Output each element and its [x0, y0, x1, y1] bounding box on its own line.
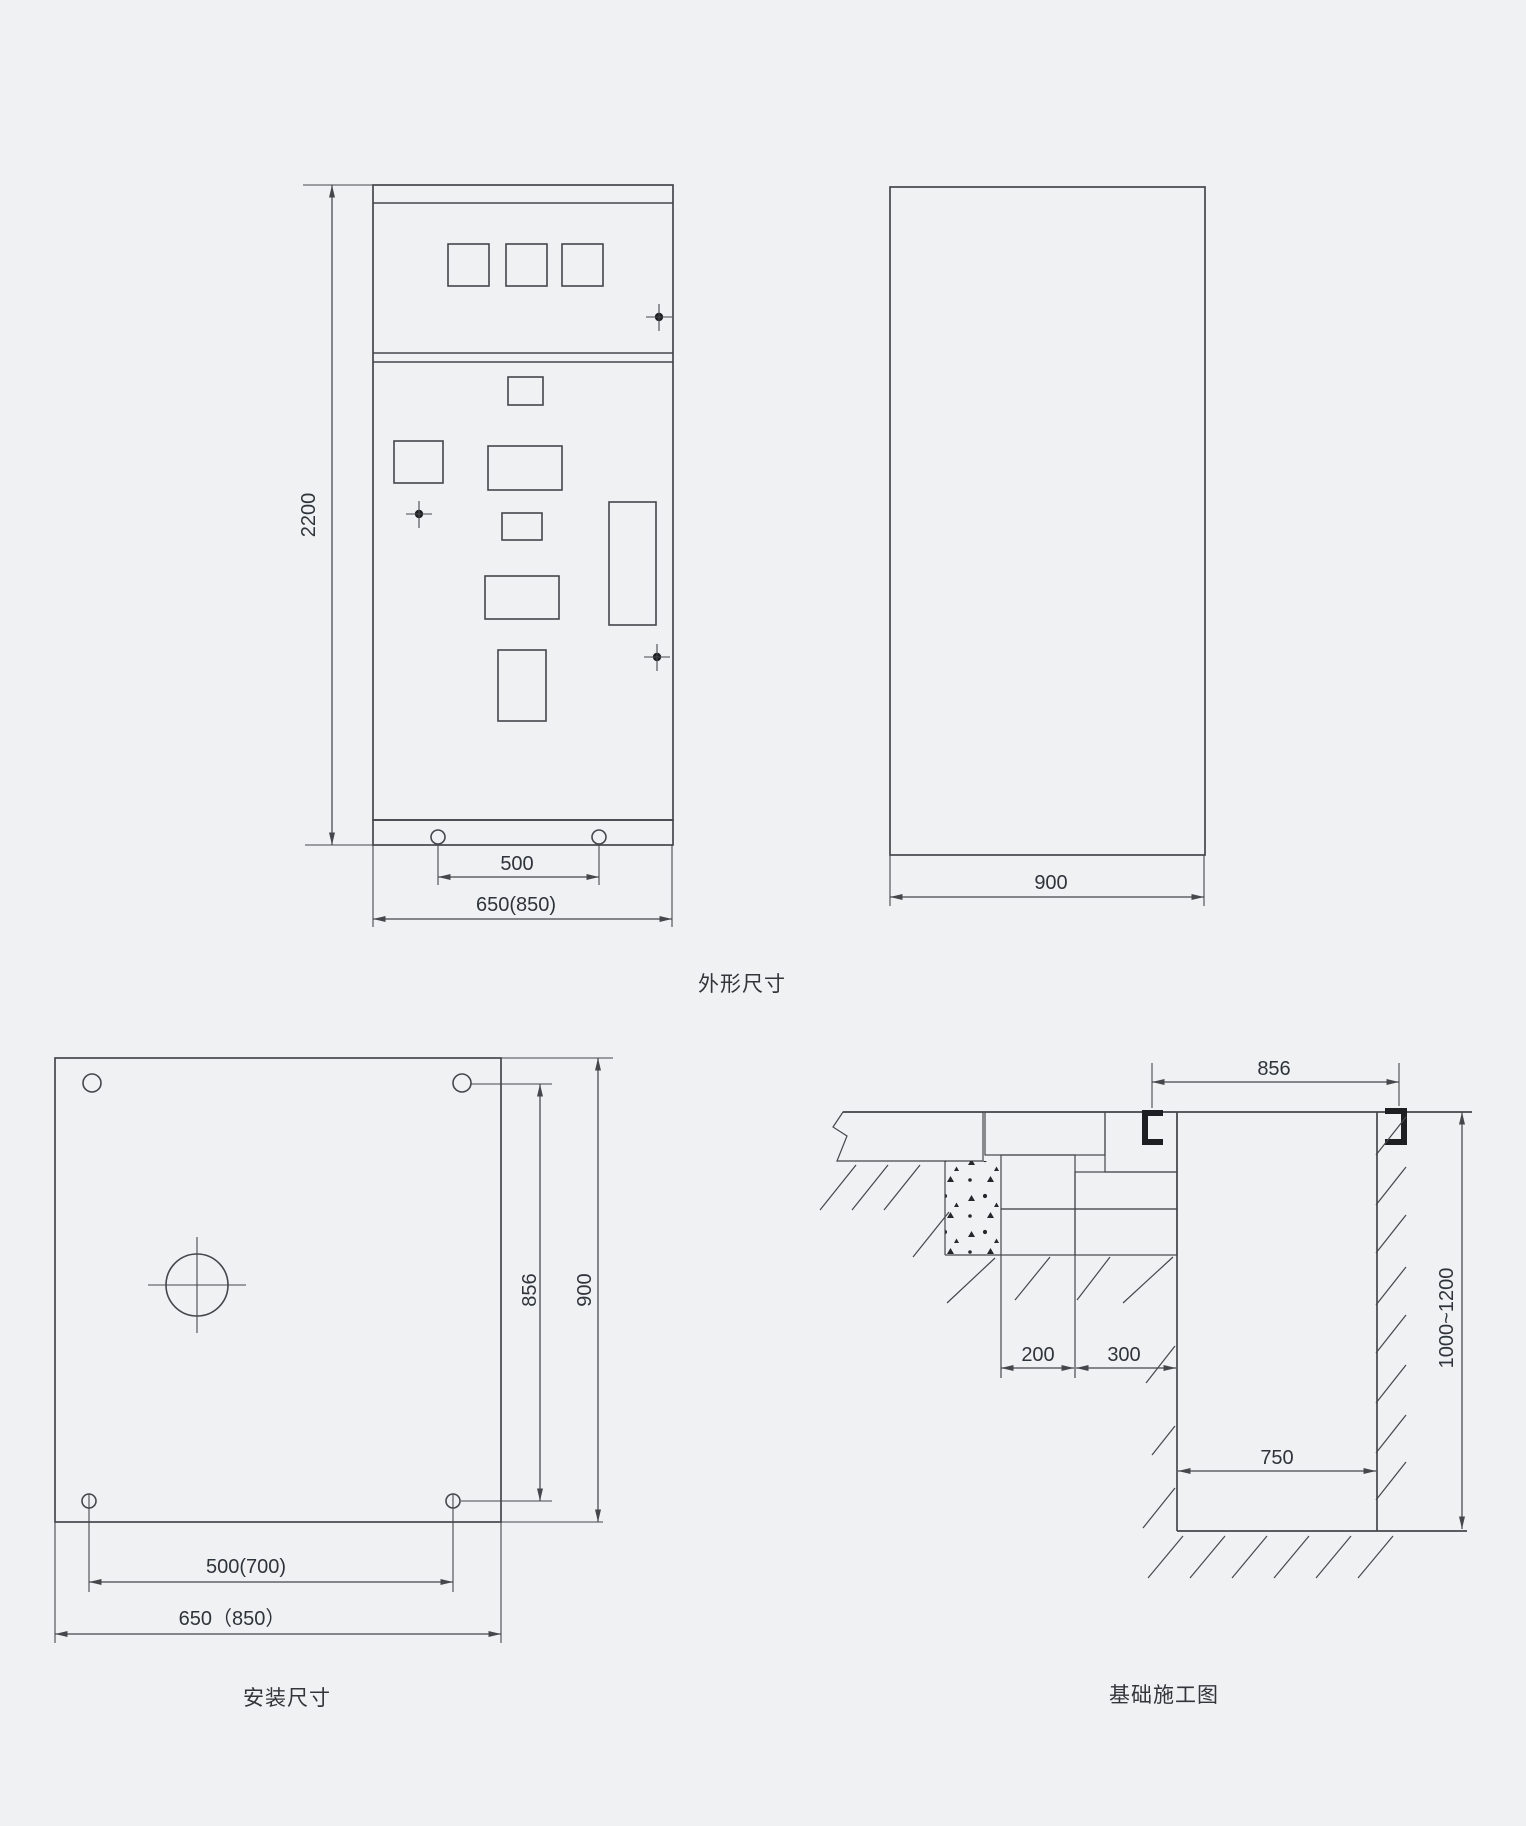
fixing-point-marker [406, 501, 432, 528]
dim-label-plan-hole-span: 856 [519, 1273, 541, 1306]
dimension-foundation-pit-depth: 1000~1200 [1436, 1112, 1462, 1529]
embedded-channel-left [1142, 1110, 1163, 1145]
footprint-outline [55, 1058, 501, 1522]
installation-plan-view: 856 900 500(700) 650（850） [55, 1058, 613, 1643]
caption-outline-view: 外形尺寸 [698, 973, 786, 996]
concrete-footing-right [1075, 1209, 1177, 1255]
side-view: 900 [890, 187, 1205, 906]
dim-label-ledge-width: 300 [1107, 1344, 1140, 1366]
indicator-window [508, 377, 543, 405]
dimension-front-height: 2200 [298, 185, 373, 845]
small-cutout [502, 513, 542, 540]
fixing-point-marker [644, 644, 670, 671]
panel-cutout-center [488, 446, 562, 490]
dimension-foundation-channel-spacing: 856 [1152, 1058, 1399, 1108]
drawing-sheet: 2200 500 650(850) 900 外形尺寸 [0, 0, 1526, 1826]
meter-window-2 [506, 244, 547, 286]
anchor-hole-top-left [83, 1074, 101, 1092]
caption-foundation-view: 基础施工图 [1109, 1684, 1219, 1707]
dimension-front-hole-spacing: 500 [438, 845, 599, 885]
dim-label-side-depth: 900 [1034, 872, 1067, 894]
dimension-plan-hole-span: 856 [461, 1084, 552, 1501]
front-view: 2200 500 650(850) [298, 185, 673, 927]
dimension-side-depth: 900 [890, 855, 1204, 906]
dim-label-front-hole-spacing: 500 [500, 853, 533, 875]
foot-hole-left [431, 830, 445, 844]
engineering-drawing: 2200 500 650(850) 900 外形尺寸 [0, 0, 1526, 1826]
meter-window-3 [562, 244, 603, 286]
dim-label-plan-depth: 900 [574, 1273, 596, 1306]
cabinet-base-plinth [373, 820, 673, 845]
dimension-foundation-strip: 200 [1001, 1344, 1074, 1368]
dim-label-plan-hole-spacing: 500(700) [206, 1556, 286, 1578]
panel-cutout-bottom [498, 650, 546, 721]
dimension-plan-hole-spacing: 500(700) [89, 1494, 453, 1592]
dim-label-front-height: 2200 [298, 493, 320, 538]
dimension-plan-depth: 900 [574, 1058, 598, 1522]
dim-label-channel-spacing: 856 [1257, 1058, 1290, 1080]
foot-hole-right [592, 830, 606, 844]
fixing-point-marker [646, 304, 672, 331]
bedding-layer-right [1075, 1172, 1177, 1209]
dimension-plan-width: 650（850） [55, 1607, 501, 1634]
panel-cutout-lower [485, 576, 559, 619]
dim-label-pit-depth: 1000~1200 [1436, 1268, 1458, 1369]
dim-label-pit-width: 750 [1260, 1447, 1293, 1469]
dim-label-front-width: 650(850) [476, 894, 556, 916]
concrete-footing-left [1001, 1209, 1075, 1255]
cable-entry-mark [148, 1237, 246, 1333]
dim-label-strip-width: 200 [1021, 1344, 1054, 1366]
handle-cutout [609, 502, 656, 625]
bedding-layer-left [1001, 1155, 1075, 1209]
cabinet-side-outline [890, 187, 1205, 855]
caption-installation-view: 安装尺寸 [243, 1687, 331, 1710]
concrete-block-rim [1105, 1112, 1177, 1172]
concrete-slab-middle [985, 1112, 1105, 1155]
anchor-hole-top-right [453, 1074, 471, 1092]
concrete-slab-left [833, 1112, 983, 1161]
grout-strip [945, 1161, 1001, 1255]
dim-label-plan-width: 650（850） [179, 1607, 286, 1630]
foundation-section-view: 856 200 300 750 1000~1200 [820, 1058, 1472, 1578]
dimension-foundation-pit-width: 750 [1178, 1447, 1376, 1471]
panel-cutout-left [394, 441, 443, 483]
meter-window-1 [448, 244, 489, 286]
